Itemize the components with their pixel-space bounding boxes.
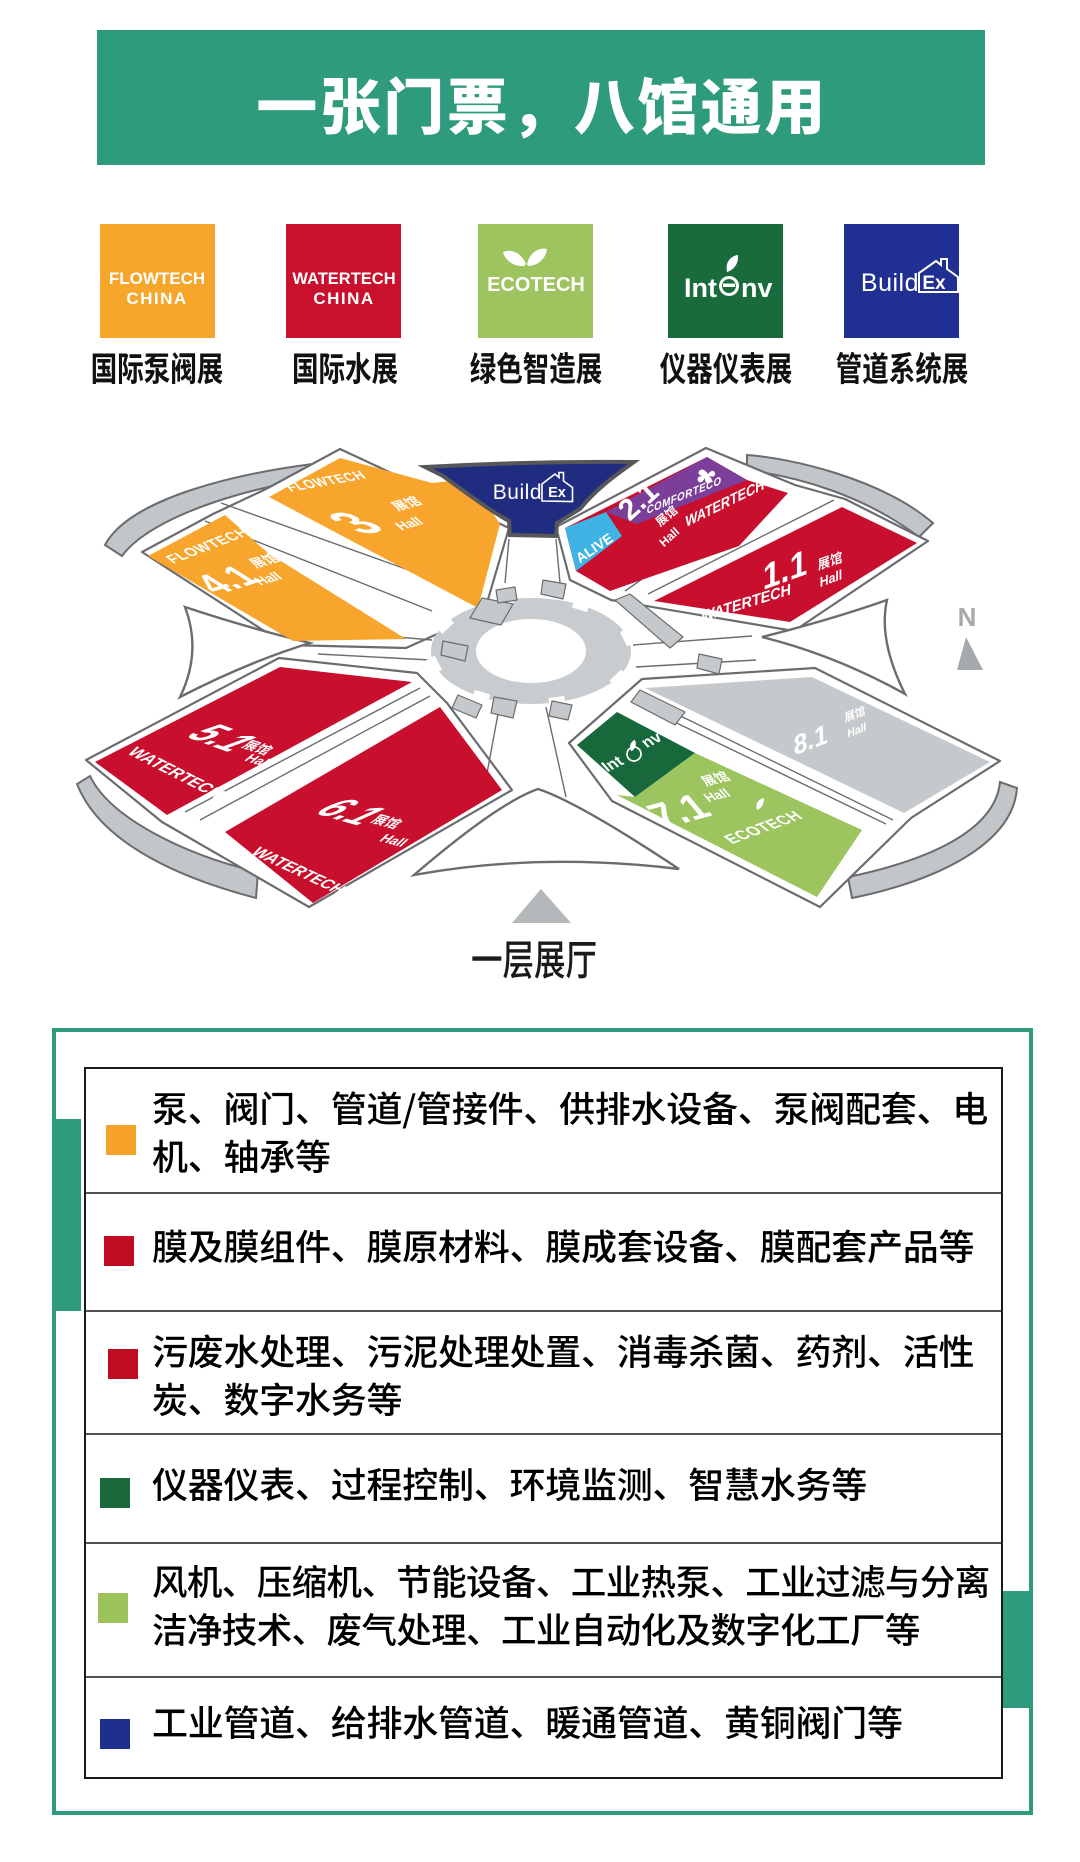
- svg-text:nv: nv: [741, 273, 773, 303]
- svg-text:CHINA: CHINA: [126, 289, 187, 308]
- svg-text:CHINA: CHINA: [313, 289, 374, 308]
- svg-text:FLOWTECH: FLOWTECH: [109, 269, 205, 288]
- svg-text:N: N: [958, 602, 977, 632]
- svg-text:Ex: Ex: [548, 485, 566, 501]
- svg-text:Build: Build: [493, 481, 542, 504]
- svg-text:WATERTECH: WATERTECH: [292, 270, 395, 288]
- svg-text:Build: Build: [861, 269, 919, 297]
- svg-text:Int: Int: [684, 273, 717, 303]
- svg-text:ECOTECH: ECOTECH: [487, 274, 585, 296]
- svg-text:Ex: Ex: [922, 273, 946, 294]
